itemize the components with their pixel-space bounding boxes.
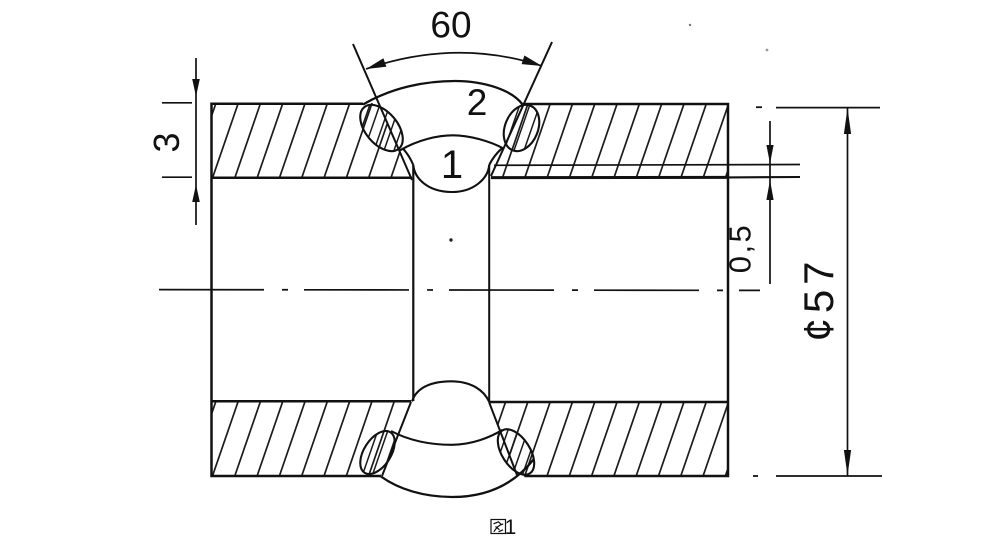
svg-text:3: 3 [146,132,187,152]
svg-text:1: 1 [505,516,517,539]
svg-text:60: 60 [430,5,471,46]
svg-text:1: 1 [441,143,463,187]
svg-text:0,5: 0,5 [723,223,758,274]
svg-text:2: 2 [467,82,488,123]
svg-text:¢57: ¢57 [795,256,842,341]
